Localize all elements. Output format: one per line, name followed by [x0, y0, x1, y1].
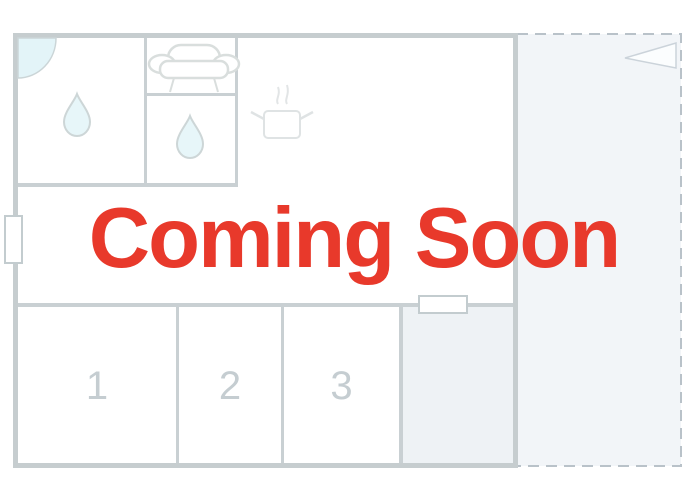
water-drop-icon: [64, 94, 90, 136]
room-label-1: 1: [18, 364, 176, 408]
coming-soon-title: Coming Soon: [0, 196, 700, 281]
room-label-2: 2: [179, 364, 281, 408]
sofa-icon: [149, 45, 239, 92]
cooking-pot-icon: [251, 85, 313, 138]
door-arc-icon: [18, 38, 56, 78]
floorplan-canvas: 1 2 3 Coming Soon: [0, 0, 700, 500]
water-drop-icon: [177, 116, 203, 158]
room-label-3: 3: [284, 364, 399, 408]
pennant-flag-icon: [625, 43, 676, 68]
